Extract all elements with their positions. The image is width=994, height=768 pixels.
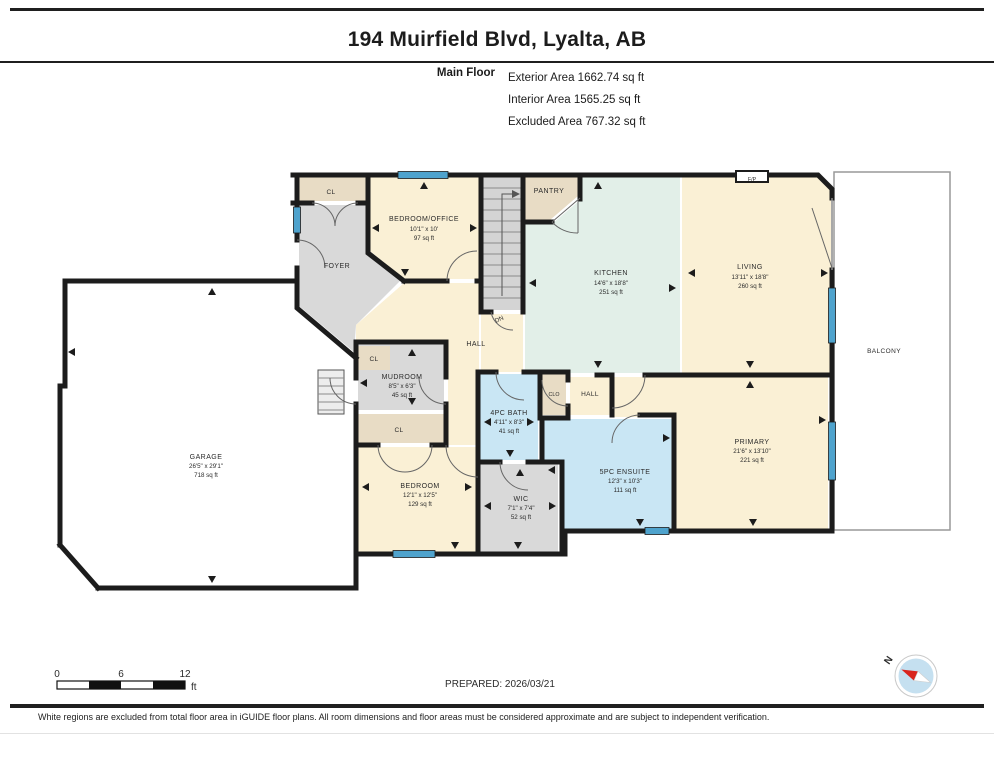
room-bedroom — [358, 447, 476, 552]
floor-plan-svg: CL BEDROOM/OFFICE 10'1" x 10' 97 sq ft P… — [0, 0, 994, 768]
compass-icon: N — [882, 654, 937, 697]
compass-n-label: N — [882, 654, 895, 666]
label-ensuite-name: 5PC ENSUITE — [600, 469, 651, 476]
label-hall: HALL — [466, 341, 485, 348]
label-bath-area: 41 sq ft — [499, 428, 520, 435]
label-bedroom-area: 129 sq ft — [408, 501, 432, 508]
label-garage-dims: 26'5" x 29'1" — [189, 463, 223, 470]
label-living-dims: 13'11" x 18'8" — [732, 274, 769, 281]
label-ensuite-dims: 12'3" x 10'3" — [608, 478, 642, 485]
page-edge-line — [0, 733, 994, 734]
scale-bar: 0 6 12 ft — [54, 669, 197, 693]
label-mudroom-name: MUDROOM — [382, 374, 423, 381]
label-pantry: PANTRY — [534, 188, 564, 195]
label-cl-top: CL — [326, 189, 335, 196]
window-bedroom — [393, 551, 435, 558]
garage-steps — [318, 370, 344, 414]
label-wic-area: 52 sq ft — [511, 514, 532, 521]
floor-plan-page: 194 Muirfield Blvd, Lyalta, AB Main Floo… — [0, 0, 994, 768]
window-living — [829, 288, 836, 343]
scale-unit: ft — [191, 682, 197, 693]
label-kitchen-area: 251 sq ft — [599, 289, 623, 296]
room-hall-b — [481, 314, 523, 372]
scale-six: 6 — [118, 669, 124, 680]
label-primary-name: PRIMARY — [735, 439, 770, 446]
label-bedroom-office-area: 97 sq ft — [414, 235, 435, 242]
window-primary — [829, 422, 836, 480]
label-primary-area: 221 sq ft — [740, 457, 764, 464]
label-balcony: BALCONY — [867, 348, 901, 355]
prepared-date: PREPARED: 2026/03/21 — [445, 679, 555, 690]
window-foyer — [294, 207, 301, 233]
label-kitchen-name: KITCHEN — [594, 270, 628, 277]
label-mudroom-dims: 8'5" x 6'3" — [388, 383, 415, 390]
label-cl-mud: CL — [369, 356, 378, 363]
label-bedroom-name: BEDROOM — [400, 483, 439, 490]
label-living-name: LIVING — [737, 264, 763, 271]
label-garage-area: 718 sq ft — [194, 472, 218, 479]
label-wic-name: WIC — [514, 496, 529, 503]
label-hall2: HALL — [581, 391, 599, 398]
label-clo: CLO — [549, 392, 560, 398]
scale-zero: 0 — [54, 669, 60, 680]
label-wic-dims: 7'1" x 7'4" — [507, 505, 534, 512]
label-ensuite-area: 111 sq ft — [614, 487, 637, 494]
label-cl-lower: CL — [394, 427, 403, 434]
label-bath-dims: 4'11" x 8'3" — [494, 419, 524, 426]
label-kitchen-dims: 14'6" x 18'8" — [594, 280, 628, 287]
label-bedroom-office-name: BEDROOM/OFFICE — [389, 216, 459, 223]
label-bedroom-dims: 12'1" x 12'5" — [403, 492, 437, 499]
room-bath — [480, 374, 538, 460]
label-fireplace: F/P — [748, 177, 757, 183]
label-garage-name: GARAGE — [190, 454, 223, 461]
scale-twelve: 12 — [179, 669, 191, 680]
window-bedroom-office — [398, 172, 448, 179]
label-living-area: 260 sq ft — [738, 283, 762, 290]
label-bath-name: 4PC BATH — [490, 410, 527, 417]
bottom-rule — [10, 704, 984, 708]
label-bedroom-office-dims: 10'1" x 10' — [410, 226, 438, 233]
label-foyer: FOYER — [324, 263, 350, 270]
window-ensuite — [645, 528, 669, 535]
label-primary-dims: 21'6" x 13'10" — [733, 448, 770, 455]
disclaimer-text: White regions are excluded from total fl… — [38, 712, 769, 722]
label-mudroom-area: 45 sq ft — [392, 392, 413, 399]
